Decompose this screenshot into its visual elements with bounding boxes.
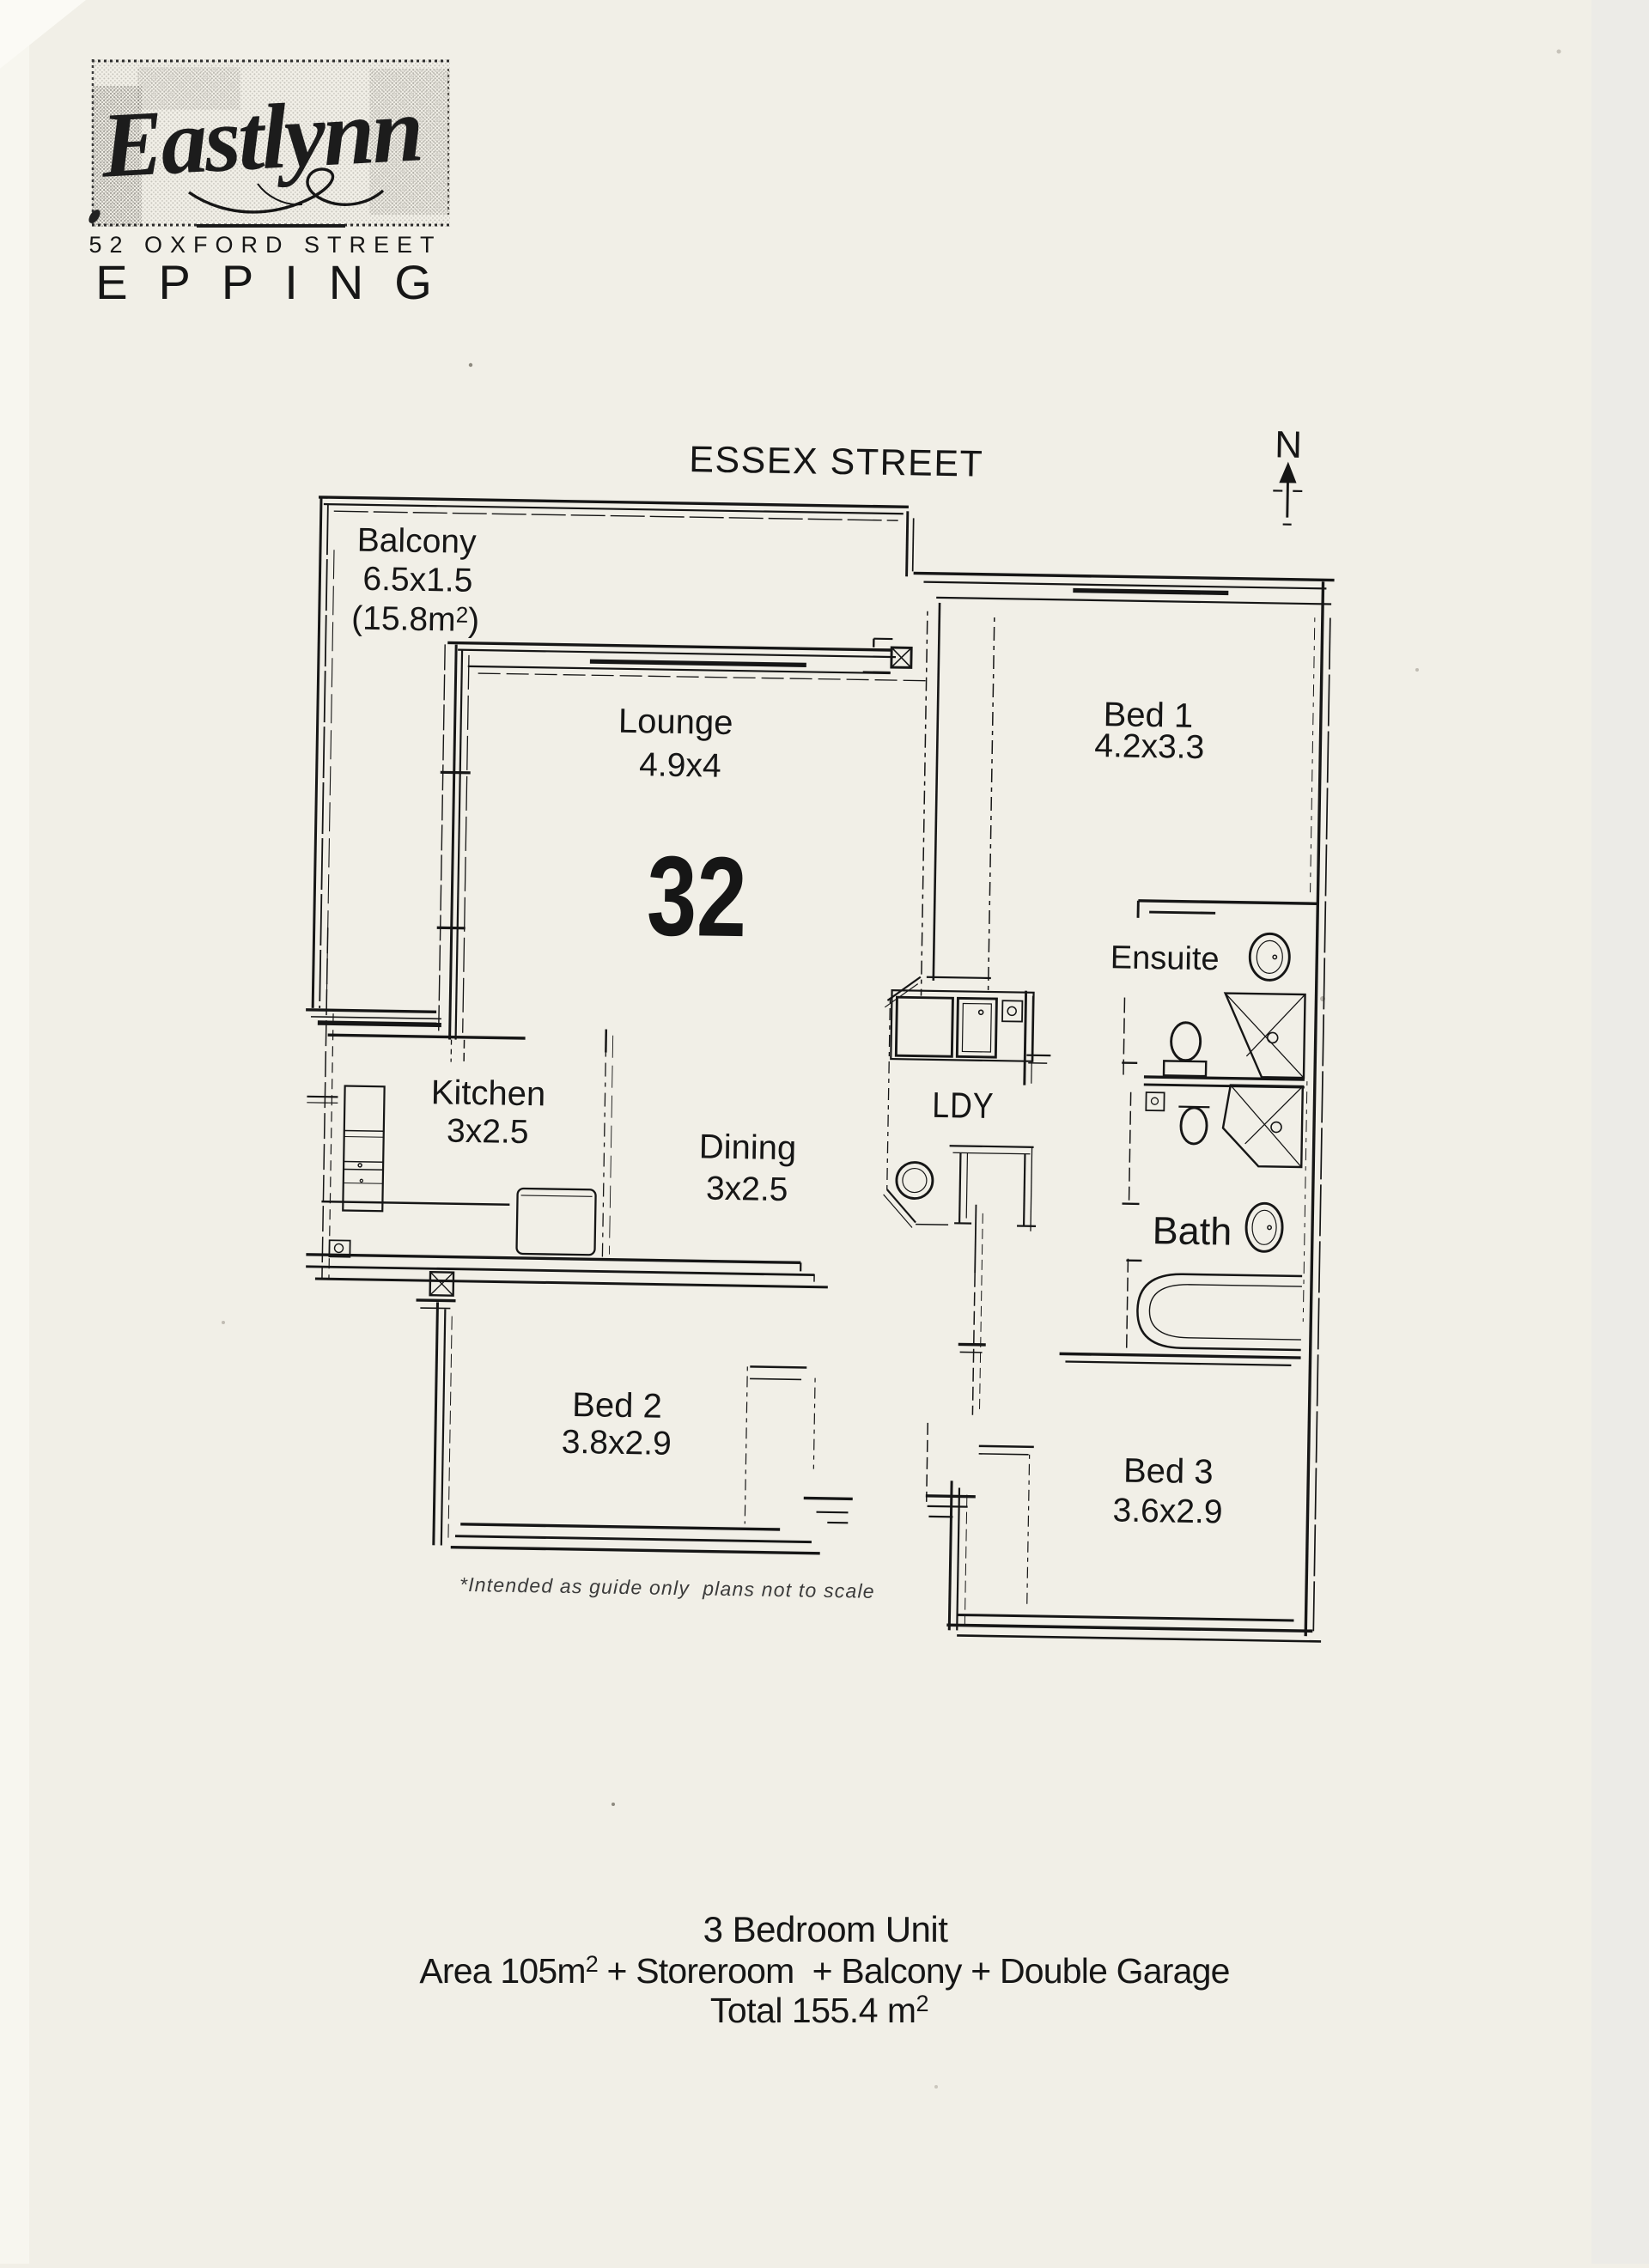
- svg-text:Lounge: Lounge: [618, 702, 733, 742]
- svg-text:3x2.5: 3x2.5: [447, 1113, 529, 1152]
- svg-text:4.9x4: 4.9x4: [639, 746, 721, 785]
- svg-text:Area 105m2 + Storeroom + Balc: Area 105m2 + Storeroom + Balcony + Doubl…: [419, 1951, 1229, 1991]
- svg-text:Ensuite: Ensuite: [1110, 939, 1220, 977]
- svg-text:3x2.5: 3x2.5: [706, 1170, 788, 1209]
- svg-text:Eastlynn: Eastlynn: [98, 78, 423, 197]
- svg-text:LDY: LDY: [932, 1085, 995, 1126]
- svg-text:52 OXFORD STREET: 52 OXFORD STREET: [88, 232, 441, 258]
- svg-text:Bath: Bath: [1152, 1208, 1232, 1254]
- svg-text:Bed 2: Bed 2: [572, 1386, 662, 1426]
- svg-text:Dining: Dining: [698, 1128, 796, 1167]
- svg-text:Kitchen: Kitchen: [430, 1073, 545, 1113]
- svg-text:32: 32: [646, 832, 747, 960]
- svg-text:3.8x2.9: 3.8x2.9: [561, 1424, 672, 1462]
- svg-text:Balcony: Balcony: [356, 522, 477, 561]
- svg-text:ESSEX STREET: ESSEX STREET: [689, 439, 984, 485]
- svg-text:EPPING: EPPING: [95, 255, 463, 309]
- svg-text:3.6x2.9: 3.6x2.9: [1112, 1492, 1223, 1530]
- svg-text:Total 155.4 m2: Total 155.4 m2: [710, 1991, 928, 2030]
- svg-text:4.2x3.3: 4.2x3.3: [1094, 727, 1205, 766]
- svg-text:N: N: [1275, 423, 1303, 466]
- svg-text:3 Bedroom Unit: 3 Bedroom Unit: [703, 1909, 949, 1949]
- svg-text:Bed 3: Bed 3: [1123, 1452, 1214, 1492]
- svg-text:6.5x1.5: 6.5x1.5: [362, 561, 473, 599]
